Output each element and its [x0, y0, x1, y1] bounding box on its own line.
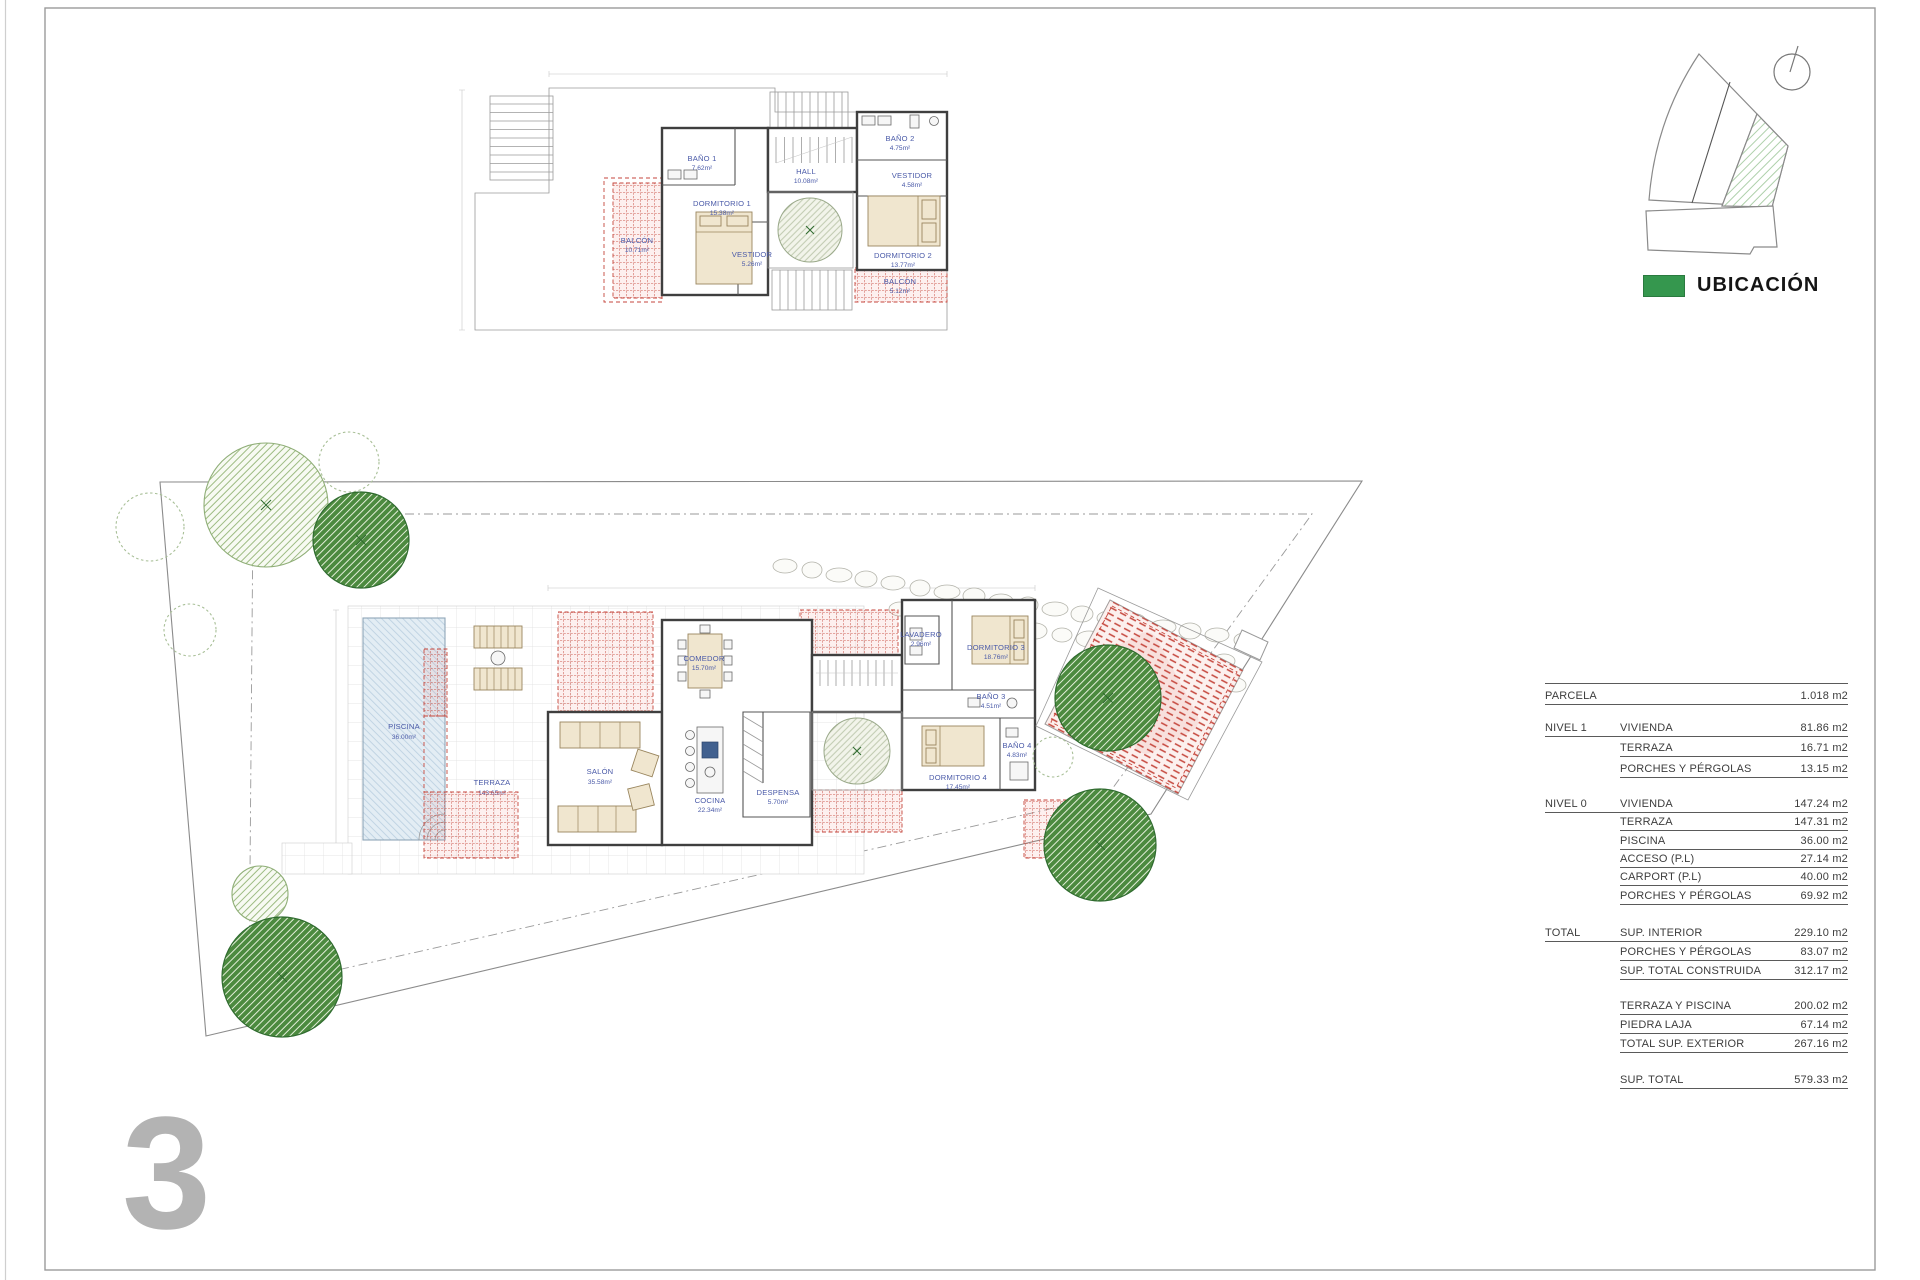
room-label-hall: HALL: [796, 167, 816, 176]
row-label: [1545, 776, 1620, 778]
row-value: 69.92 m2: [1801, 890, 1848, 902]
location-diagram: [1646, 46, 1810, 254]
table-row: PORCHES Y PÉRGOLAS13.15 m2: [1545, 757, 1848, 778]
room-label-banio4: BAÑO 4: [1002, 741, 1031, 750]
terrace-paving-strip: [282, 843, 352, 874]
room-label-lavadero: LAVADERO: [900, 630, 942, 639]
room-area-balcon2: 5.12m²: [890, 288, 911, 295]
row-label: NIVEL 1: [1545, 722, 1620, 737]
tree-sketch-icon: [116, 493, 184, 561]
room-area-banio4: 4.83m²: [1007, 752, 1028, 759]
row-sublabel: CARPORT (P.L): [1620, 871, 1701, 883]
room-label-balcon2: BALCÓN: [884, 277, 916, 286]
row-value: 27.14 m2: [1801, 853, 1848, 865]
row-value: 83.07 m2: [1801, 946, 1848, 958]
steps-north: [770, 92, 848, 128]
location-swatch: [1643, 275, 1685, 297]
room-label-comedor: COMEDOR: [683, 654, 724, 663]
table-row: PARCELA 1.018 m2: [1545, 683, 1848, 705]
row-value: 147.31 m2: [1794, 816, 1848, 828]
room-area-banio1: 7.62m²: [692, 165, 713, 172]
room-area-piscina: 36.00m²: [392, 734, 417, 741]
room-label-dormitorio3: DORMITORIO 3: [967, 643, 1025, 652]
row-label: [1545, 829, 1620, 831]
room-label-terraza: TERRAZA: [474, 778, 512, 787]
row-label: [1545, 978, 1620, 980]
room-area-banio2: 4.75m²: [890, 145, 911, 152]
north-arrow-icon: [1774, 46, 1810, 90]
table-row: NIVEL 0 VIVIENDA147.24 m2: [1545, 795, 1848, 813]
room-label-cocina: COCINA: [695, 796, 726, 805]
row-value: 40.00 m2: [1801, 871, 1848, 883]
upper-floor-plan: BAÑO 1 7.62m² DORMITORIO 1 15.38m² VESTI…: [459, 71, 947, 330]
bed-dormitorio2: [868, 196, 940, 246]
table-row: TERRAZA Y PISCINA200.02 m2: [1545, 996, 1848, 1015]
row-value: 229.10 m2: [1794, 927, 1848, 939]
row-sublabel: TERRAZA: [1620, 742, 1673, 754]
room-label-vestidor2: VESTIDOR: [892, 171, 933, 180]
row-sublabel: TERRAZA: [1620, 816, 1673, 828]
row-sublabel: SUP. TOTAL: [1620, 1074, 1684, 1086]
row-sublabel: TERRAZA Y PISCINA: [1620, 1000, 1731, 1012]
room-label-dormitorio2: DORMITORIO 2: [874, 251, 932, 260]
table-row: TERRAZA147.31 m2: [1545, 813, 1848, 831]
table-row: CARPORT (P.L)40.00 m2: [1545, 868, 1848, 886]
room-area-vestidor2: 4.58m²: [902, 182, 923, 189]
room-area-cocina: 22.34m²: [698, 807, 723, 814]
table-row: PORCHES Y PÉRGOLAS69.92 m2: [1545, 886, 1848, 904]
room-label-banio3: BAÑO 3: [976, 692, 1005, 701]
table-row: PIEDRA LAJA67.14 m2: [1545, 1015, 1848, 1034]
row-sublabel: SUP. TOTAL CONSTRUIDA: [1620, 965, 1761, 977]
road-strip: [1646, 206, 1777, 254]
row-sublabel: PORCHES Y PÉRGOLAS: [1620, 890, 1752, 902]
corridor-walls: [812, 655, 902, 712]
row-value: 36.00 m2: [1801, 835, 1848, 847]
bed-dormitorio1: [696, 212, 752, 284]
table-row: NIVEL 1 VIVIENDA81.86 m2: [1545, 716, 1848, 737]
steps-south: [772, 270, 852, 310]
row-label: NIVEL 0: [1545, 798, 1620, 813]
row-label: [1545, 903, 1620, 905]
row-sublabel: PIEDRA LAJA: [1620, 1019, 1692, 1031]
table-row: PORCHES Y PÉRGOLAS83.07 m2: [1545, 942, 1848, 961]
pergola-northwest: [558, 612, 653, 712]
room-label-salon: SALÓN: [587, 767, 614, 776]
row-label: [1545, 755, 1620, 757]
steps-west: [490, 96, 553, 180]
row-label: [1545, 1032, 1620, 1034]
row-value: 67.14 m2: [1801, 1019, 1848, 1031]
bed-dormitorio4: [922, 726, 984, 766]
table-row: SUP. TOTAL579.33 m2: [1545, 1070, 1848, 1089]
sheet-number: 3: [122, 1083, 211, 1262]
row-label: PARCELA: [1545, 690, 1620, 704]
row-label: [1545, 1013, 1620, 1015]
row-sublabel: ACCESO (P.L): [1620, 853, 1694, 865]
pergola-west-strip: [424, 649, 447, 716]
room-area-lavadero: 2.96m²: [911, 641, 932, 648]
row-value: 81.86 m2: [1801, 722, 1848, 734]
row-value: 13.15 m2: [1801, 763, 1848, 775]
dimension-line: [548, 585, 1035, 591]
room-area-despensa: 5.70m²: [768, 799, 789, 806]
area-table: PARCELA 1.018 m2 NIVEL 1 VIVIENDA81.86 m…: [1545, 683, 1848, 1089]
row-sublabel: TOTAL SUP. EXTERIOR: [1620, 1038, 1744, 1050]
table-row: PISCINA36.00 m2: [1545, 831, 1848, 849]
table-row: TOTAL SUP. EXTERIOR267.16 m2: [1545, 1034, 1848, 1053]
site-plan: PISCINA 36.00m² TERRAZA 143.65m²: [116, 432, 1362, 1037]
dimension-line: [333, 610, 339, 870]
row-sublabel: VIVIENDA: [1620, 722, 1673, 734]
room-label-balcon1: BALCÓN: [621, 236, 653, 245]
room-area-banio3: 4.51m²: [981, 703, 1002, 710]
tree-icon: [232, 866, 288, 922]
table-row: TERRAZA16.71 m2: [1545, 737, 1848, 758]
room-area-dormitorio2: 13.77m²: [891, 262, 916, 269]
room-label-banio2: BAÑO 2: [885, 134, 914, 143]
room-label-vestidor1: VESTIDOR: [732, 250, 773, 259]
row-value: 267.16 m2: [1794, 1038, 1848, 1050]
row-value: 147.24 m2: [1794, 798, 1848, 810]
room-area-dormitorio4: 17.45m²: [946, 784, 971, 791]
row-label: [1545, 848, 1620, 850]
row-label: [1545, 1087, 1620, 1089]
row-sublabel: PISCINA: [1620, 835, 1665, 847]
row-value: 200.02 m2: [1794, 1000, 1848, 1012]
room-area-salon: 35.58m²: [588, 779, 613, 786]
location-legend-label: UBICACIÓN: [1697, 274, 1819, 297]
pergola-entry: [800, 610, 898, 655]
dimension-line: [459, 90, 465, 330]
plan-sheet: BAÑO 1 7.62m² DORMITORIO 1 15.38m² VESTI…: [0, 0, 1920, 1280]
room-area-vestidor1: 5.26m²: [742, 261, 763, 268]
room-area-comedor: 15.70m²: [692, 665, 717, 672]
row-sublabel: PORCHES Y PÉRGOLAS: [1620, 946, 1752, 958]
row-label: TOTAL: [1545, 927, 1620, 942]
location-legend: UBICACIÓN: [1643, 274, 1819, 297]
tree-sketch-icon: [1033, 737, 1073, 777]
row-label: [1545, 866, 1620, 868]
room-area-dormitorio3: 18.76m²: [984, 654, 1009, 661]
table-row: SUP. TOTAL CONSTRUIDA312.17 m2: [1545, 961, 1848, 980]
table-row: ACCESO (P.L)27.14 m2: [1545, 850, 1848, 868]
row-value: 579.33 m2: [1794, 1074, 1848, 1086]
room-area-hall: 10.08m²: [794, 178, 819, 185]
room-label-dormitorio1: DORMITORIO 1: [693, 199, 751, 208]
table-row: TOTAL SUP. INTERIOR229.10 m2: [1545, 923, 1848, 942]
room-area-dormitorio1: 15.38m²: [710, 210, 735, 217]
room-area-balcon1: 10.71m²: [625, 247, 650, 254]
room-label-piscina: PISCINA: [388, 722, 421, 731]
pergola-courtyard-south: [812, 790, 902, 832]
row-sublabel: SUP. INTERIOR: [1620, 927, 1702, 939]
row-label: [1545, 884, 1620, 886]
row-value: 16.71 m2: [1801, 742, 1848, 754]
room-label-dormitorio4: DORMITORIO 4: [929, 773, 987, 782]
pergola-southwest: [424, 792, 518, 858]
room-label-banio1: BAÑO 1: [687, 154, 716, 163]
row-label: [1545, 959, 1620, 961]
room-label-despensa: DESPENSA: [757, 788, 801, 797]
row-value: 1.018 m2: [1801, 690, 1848, 702]
row-sublabel: PORCHES Y PÉRGOLAS: [1620, 763, 1752, 775]
dimension-line: [549, 71, 947, 77]
tree-sketch-icon: [319, 432, 379, 492]
row-sublabel: VIVIENDA: [1620, 798, 1673, 810]
row-label: [1545, 1051, 1620, 1053]
row-value: 312.17 m2: [1794, 965, 1848, 977]
